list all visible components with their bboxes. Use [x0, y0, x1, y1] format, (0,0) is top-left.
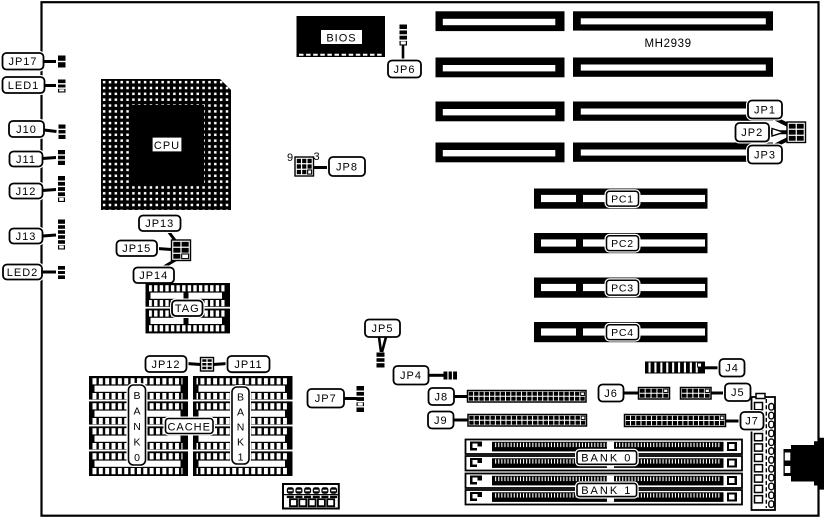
svg-text:JP17: JP17	[8, 56, 37, 68]
svg-text:JP2: JP2	[741, 127, 763, 139]
svg-text:J13: J13	[16, 231, 37, 243]
svg-text:K: K	[237, 437, 244, 449]
svg-text:TAG: TAG	[175, 303, 200, 315]
svg-text:CPU: CPU	[154, 140, 180, 152]
svg-text:J7: J7	[745, 416, 759, 428]
svg-text:J4: J4	[725, 363, 739, 375]
svg-text:BANK 1: BANK 1	[581, 485, 632, 497]
svg-text:JP7: JP7	[315, 393, 337, 405]
svg-text:N: N	[133, 421, 141, 433]
svg-text:K: K	[133, 437, 140, 449]
svg-text:J6: J6	[604, 388, 618, 400]
svg-text:JP8: JP8	[336, 161, 358, 173]
svg-text:9: 9	[287, 152, 293, 164]
svg-text:B: B	[133, 390, 140, 402]
svg-text:J8: J8	[434, 391, 448, 403]
svg-text:J9: J9	[434, 415, 448, 427]
svg-text:JP6: JP6	[394, 64, 416, 76]
svg-text:BANK 0: BANK 0	[581, 453, 632, 465]
svg-text:JP4: JP4	[400, 370, 422, 382]
svg-text:PC1: PC1	[611, 193, 634, 205]
svg-text:PC2: PC2	[611, 238, 634, 250]
svg-text:JP5: JP5	[372, 323, 394, 335]
svg-text:A: A	[237, 407, 244, 419]
svg-text:JP12: JP12	[151, 359, 180, 371]
svg-text:PC4: PC4	[611, 327, 634, 339]
svg-text:J5: J5	[731, 387, 745, 399]
svg-text:3: 3	[314, 151, 320, 163]
svg-text:CACHE: CACHE	[167, 421, 211, 433]
svg-text:N: N	[237, 422, 245, 434]
svg-text:JP14: JP14	[139, 270, 168, 282]
svg-text:LED2: LED2	[7, 267, 39, 279]
svg-text:LED1: LED1	[8, 80, 40, 92]
svg-text:A: A	[133, 406, 140, 418]
svg-text:0: 0	[134, 452, 140, 464]
svg-text:B: B	[237, 392, 244, 404]
svg-text:JP11: JP11	[234, 359, 262, 371]
svg-text:BIOS: BIOS	[326, 32, 356, 44]
svg-text:JP3: JP3	[754, 149, 776, 161]
svg-text:MH2939: MH2939	[645, 38, 692, 50]
svg-text:JP13: JP13	[145, 218, 174, 230]
svg-text:J10: J10	[16, 124, 37, 136]
svg-text:JP1: JP1	[754, 104, 776, 116]
svg-text:J11: J11	[16, 154, 36, 166]
svg-text:JP15: JP15	[122, 243, 151, 255]
svg-text:1: 1	[238, 452, 244, 464]
svg-text:PC3: PC3	[611, 282, 634, 294]
svg-text:J12: J12	[16, 186, 37, 198]
